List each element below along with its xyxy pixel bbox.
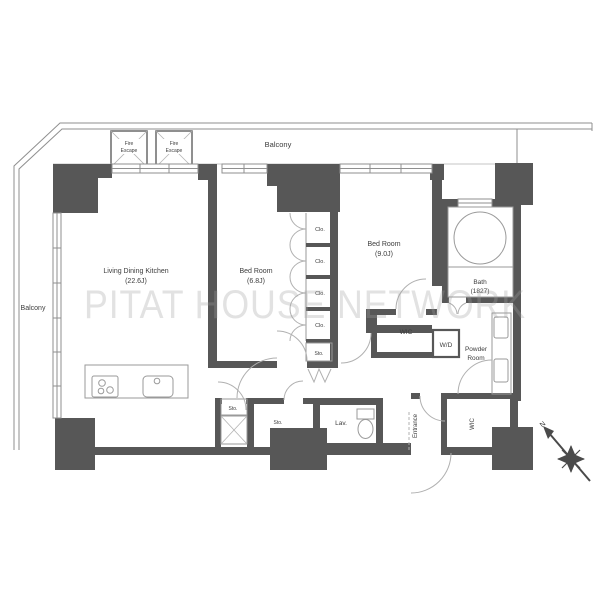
wall xyxy=(441,393,447,447)
balcony-top-label: Balcony xyxy=(265,140,292,149)
wall xyxy=(432,164,442,286)
bedroom1-label: Bed Room xyxy=(239,268,272,275)
bifold-door xyxy=(308,369,331,382)
watermark: PITAT HOUSE NETWORK xyxy=(84,283,526,327)
bathtub-icon xyxy=(454,212,506,264)
closet-door-arc xyxy=(290,245,306,261)
wall xyxy=(267,164,340,186)
wall xyxy=(510,398,518,428)
storage-label: Sto. xyxy=(229,406,238,412)
entrance-door-arc xyxy=(411,453,451,493)
wall xyxy=(307,361,338,368)
wall xyxy=(495,163,533,205)
bedroom2-door-arc xyxy=(341,333,371,363)
closet-divider xyxy=(306,243,338,247)
ldk-label: Living Dining Kitchen xyxy=(103,268,168,275)
entrance-label: Entrance xyxy=(413,413,419,438)
wall xyxy=(93,447,273,455)
wall xyxy=(277,186,340,212)
floor-plan-page: Fire Escape Fire Escape xyxy=(0,0,600,600)
wall xyxy=(270,428,327,470)
wall xyxy=(441,447,492,455)
pipe-space xyxy=(221,416,247,444)
vanity-icon xyxy=(494,359,508,382)
fire-escape-label: Escape xyxy=(166,148,183,154)
wall xyxy=(411,393,420,399)
wall xyxy=(444,199,458,207)
fire-escape-label: Fire xyxy=(170,141,179,147)
wall xyxy=(492,427,533,470)
closet-door-arc xyxy=(290,325,306,341)
wall xyxy=(208,361,277,368)
wall xyxy=(313,443,411,455)
closet-label: Clo. xyxy=(315,259,325,265)
lavatory-label: Lav. xyxy=(335,420,347,427)
wall xyxy=(55,418,95,470)
toilet-icon xyxy=(357,409,374,439)
wall xyxy=(53,178,98,213)
fire-escape-hatch: Fire Escape xyxy=(111,131,147,167)
wall xyxy=(208,164,217,368)
closet-door-arc xyxy=(290,229,306,245)
wic-lower-label: WIC xyxy=(470,418,476,430)
powder-room-label: Powder xyxy=(465,346,488,353)
bedroom1-door-arc xyxy=(277,331,307,361)
wall xyxy=(254,398,284,404)
compass-icon: N xyxy=(539,421,590,481)
fire-escape-label: Fire xyxy=(125,141,134,147)
closet-door-arc xyxy=(290,213,306,229)
kitchen-counter xyxy=(85,365,188,398)
bedroom2-label: Bed Room xyxy=(367,241,400,248)
wall xyxy=(313,398,383,405)
washer-dryer-label: W/D xyxy=(440,342,453,349)
bedroom2-size-label: (9.0J) xyxy=(375,251,393,258)
sink-icon xyxy=(143,376,173,397)
wall xyxy=(376,398,383,445)
storage-label: Sto. xyxy=(315,351,324,357)
wall xyxy=(371,352,441,358)
stove-icon xyxy=(92,376,118,397)
powder-room-label2: Room xyxy=(467,355,484,362)
wall xyxy=(215,398,221,447)
closet-divider xyxy=(306,339,338,343)
fire-escape-label: Escape xyxy=(121,148,138,154)
wall xyxy=(492,199,515,207)
closet-door-arc xyxy=(290,261,306,277)
wall xyxy=(53,164,112,178)
closet-label: Clo. xyxy=(315,227,325,233)
powder-room-door-arc xyxy=(458,360,492,394)
wall xyxy=(247,398,254,447)
wall xyxy=(303,398,313,404)
balcony-left-label: Balcony xyxy=(21,305,46,312)
fire-escape-hatch: Fire Escape xyxy=(156,131,192,167)
closet-divider xyxy=(306,275,338,279)
storage-label: Sto. xyxy=(274,420,283,426)
wic-upper-label: WIC xyxy=(400,329,413,336)
storage-door-arc xyxy=(284,381,303,400)
floor-plan: Fire Escape Fire Escape xyxy=(0,0,600,600)
